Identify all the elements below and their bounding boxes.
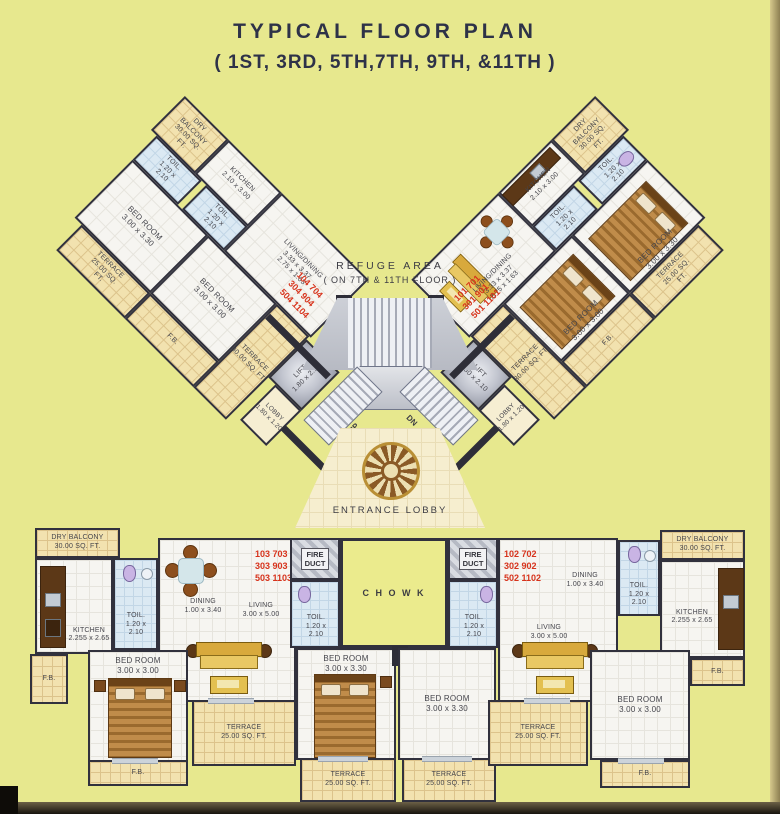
flat102-terrace-lower: TERRACE 25.00 SQ. FT. — [402, 758, 496, 802]
dining-label: DINING 1.00 x 3.40 — [554, 572, 616, 589]
flat102-dry-balcony: DRY BALCONY 30.00 SQ. FT. — [660, 530, 745, 560]
page-title: TYPICAL FLOOR PLAN — [0, 20, 770, 44]
flat102-flower-bed: F.B. — [690, 658, 745, 686]
fire-duct-label: FIRE DUCT — [459, 548, 488, 570]
toilet-fixture — [628, 546, 641, 563]
bedroom-label: BED ROOM 3.00 x 3.00 — [617, 695, 662, 715]
core-toilet-left: TOIL. 1.20 x 2.10 — [290, 580, 340, 648]
flat103-dry-balcony: DRY BALCONY 30.00 SQ. FT. — [35, 528, 120, 558]
bedroom-label: BED ROOM 3.00 x 3.00 — [191, 276, 237, 322]
fb-label: F.B. — [43, 675, 56, 684]
kitchen-platform — [718, 568, 744, 650]
kitchen-label: KITCHEN 2.10 x 3.00 — [219, 164, 257, 202]
terrace-label: TERRACE 25.00 SQ. FT. — [325, 771, 371, 788]
dining-table — [470, 204, 524, 258]
flat102-terrace: TERRACE 25.00 SQ. FT. — [488, 700, 588, 766]
toilet-label: TOIL. 1.20 x 2.10 — [119, 612, 153, 638]
dining-label: DINING 1.00 x 3.40 — [172, 598, 234, 615]
flat102-bedroom-300: BED ROOM 3.00 x 3.00 — [590, 650, 690, 760]
page-edge-corner — [0, 786, 18, 814]
chowk-label: C H O W K — [363, 588, 426, 599]
fb-label: F.B. — [132, 769, 145, 778]
page-subtitle: ( 1ST, 3RD, 5TH,7TH, 9TH, &11TH ) — [0, 52, 770, 74]
basin-fixture — [644, 550, 656, 562]
bedroom-label: BED ROOM 3.00 x 3.00 — [90, 656, 186, 676]
flat103-bedroom-330: BED ROOM 3.00 x 3.30 — [296, 648, 396, 760]
toilet-fixture — [298, 586, 311, 603]
bedroom-label: BED ROOM 3.00 x 3.30 — [424, 694, 469, 714]
window — [524, 698, 570, 704]
window — [112, 758, 158, 764]
unit-numbers-102: 102 702 302 902 502 1102 — [504, 548, 541, 584]
floor-medallion — [362, 442, 420, 500]
refuge-floor-note: ( ON 7TH & 11TH FLOOR ) — [300, 275, 480, 285]
nightstand — [380, 676, 392, 688]
window — [618, 758, 664, 764]
refuge-label: REFUGE AREA — [300, 260, 480, 272]
nightstand — [174, 680, 186, 692]
page-edge-right — [770, 0, 780, 814]
unit-numbers-103: 103 703 303 903 503 1103 — [255, 548, 292, 584]
toilet-label: TOIL. 1.20 x 2.10 — [456, 614, 492, 640]
core-toilet-right: TOIL. 1.20 x 2.10 — [448, 580, 498, 648]
fb-label: F.B. — [601, 333, 616, 348]
flat103-toilet: TOIL. 1.20 x 2.10 — [113, 558, 158, 650]
kitchen-platform — [40, 566, 66, 648]
entrance-lobby-label: ENTRANCE LOBBY — [320, 505, 460, 516]
flat103-flower-bed: F.B. — [30, 654, 68, 704]
refuge-area: REFUGE AREA ( ON 7TH & 11TH FLOOR ) — [300, 260, 480, 285]
window — [208, 698, 254, 704]
fb-label: F.B. — [639, 770, 652, 779]
fire-duct-right: FIRE DUCT — [448, 538, 498, 580]
sofa — [522, 642, 586, 698]
bed — [108, 678, 172, 758]
fire-duct-label: FIRE DUCT — [301, 548, 330, 570]
terrace-label: TERRACE 25.00 SQ. FT. — [515, 724, 561, 741]
nightstand — [94, 680, 106, 692]
fire-duct-left: FIRE DUCT — [290, 538, 340, 580]
living-label: LIVING 3.00 x 5.00 — [226, 602, 296, 619]
stairs-dn-label: DN — [405, 413, 420, 428]
terrace-label: TERRACE 25.00 SQ. FT. — [426, 771, 472, 788]
basin-fixture — [141, 568, 153, 580]
terrace-label: TERRACE 25.00 SQ. FT. — [221, 724, 267, 741]
flat103-bedroom-300: BED ROOM 3.00 x 3.00 — [88, 650, 188, 762]
page-edge-bottom — [0, 802, 780, 814]
toilet-label: TOIL. 1.20 x 2.10 — [623, 582, 655, 608]
flat103-kitchen: KITCHEN 2.255 x 2.65 — [35, 558, 113, 654]
toilet-label: TOIL. 1.20 x 2.10 — [298, 614, 334, 640]
title-block: TYPICAL FLOOR PLAN ( 1ST, 3RD, 5TH,7TH, … — [0, 20, 770, 74]
flat102-bedroom-330: BED ROOM 3.00 x 3.30 — [398, 648, 496, 760]
toilet-label: TOIL. 1.20 x 2.10 — [549, 202, 581, 234]
fb-label: F.B. — [711, 668, 724, 677]
toilet-label: TOIL. 1.20 x 2.10 — [151, 154, 183, 186]
toilet-label: TOIL. 1.20 x 2.10 — [199, 202, 231, 234]
living-label: LIVING 3.00 x 5.00 — [514, 624, 584, 641]
terrace-label: TERRACE 30.00 SQ. FT. — [229, 340, 273, 384]
window — [318, 756, 368, 762]
stair-flight-top — [348, 298, 432, 368]
bedroom-label: BED ROOM 3.00 x 3.30 — [298, 654, 394, 674]
dry-balcony-label: DRY BALCONY 30.00 SQ. FT. — [51, 534, 103, 551]
flat103-terrace-lower: TERRACE 25.00 SQ. FT. — [300, 758, 396, 802]
toilet-fixture — [123, 565, 136, 582]
flat102-fb-strip: F.B. — [600, 760, 690, 788]
toilet-fixture — [480, 586, 493, 603]
bedroom-label: BED ROOM 3.00 x 3.30 — [119, 204, 165, 250]
sofa — [196, 642, 260, 698]
fb-label: F.B. — [164, 333, 179, 348]
flat103-terrace: TERRACE 25.00 SQ. FT. — [192, 700, 296, 766]
kitchen-label: KITCHEN 2.255 x 2.65 — [65, 627, 113, 644]
dining-table — [166, 546, 214, 594]
floor-plan: TYPICAL FLOOR PLAN ( 1ST, 3RD, 5TH,7TH, … — [0, 0, 780, 814]
dry-balcony-label: DRY BALCONY 30.00 SQ. FT. — [676, 536, 728, 553]
chowk: C H O W K — [340, 538, 448, 648]
flat102-kitchen: KITCHEN 2.255 x 2.65 — [660, 560, 745, 658]
bed — [314, 674, 376, 758]
terrace-label: TERRACE 30.00 SQ. FT. — [506, 340, 550, 384]
kitchen-label: KITCHEN 2.255 x 2.65 — [666, 609, 718, 626]
window — [422, 756, 472, 762]
flat102-toilet: TOIL. 1.20 x 2.10 — [618, 540, 660, 616]
